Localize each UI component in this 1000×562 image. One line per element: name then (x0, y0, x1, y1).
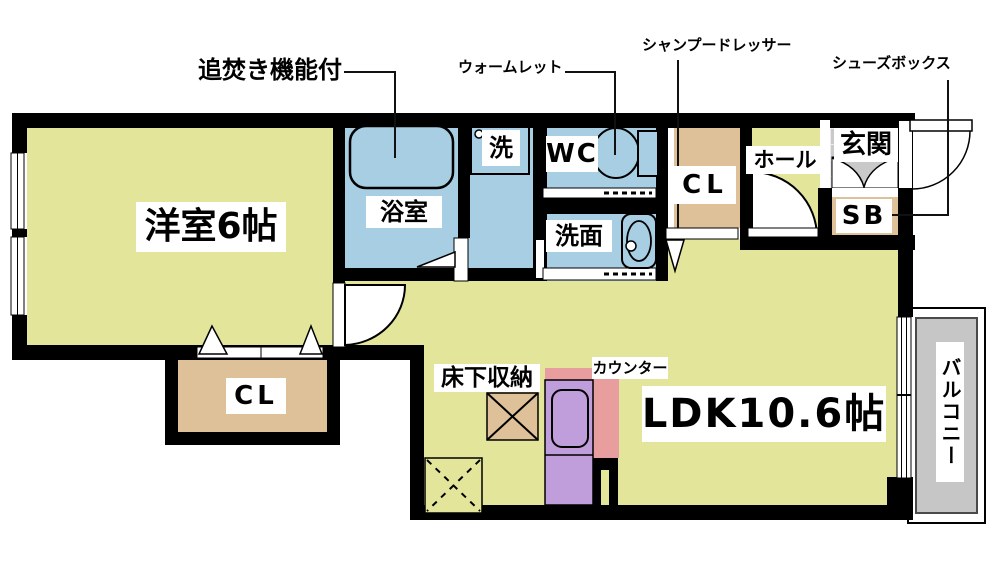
shoe-box-label: SB (836, 199, 892, 233)
annotation-shoes-box: シューズボックス (830, 56, 953, 71)
hall-label: ホール (746, 146, 824, 174)
entrance-door (899, 120, 972, 189)
counter-top-strip (545, 368, 593, 380)
toilet-label: WC (546, 136, 598, 172)
annotation-shampoo-dresser: シャンプードレッサー (640, 38, 794, 53)
toilet-icon (593, 128, 658, 178)
floorplan: 洋室6帖 LDK10.6帖 浴室 洗 WC 洗面 CL ホール 玄関 SB CL… (0, 0, 1000, 562)
floorplan-drawing (0, 0, 1000, 562)
washroom-sliding-door (543, 268, 656, 280)
laundry-label: 洗 (482, 130, 520, 166)
annotation-warmlet: ウォームレット (456, 60, 565, 75)
western-room-label: 洋室6帖 (136, 202, 286, 252)
annotation-reheating: 追焚き機能付 (196, 58, 344, 82)
counter-label: カウンター (592, 357, 668, 379)
closet-upper-label: CL (674, 166, 736, 204)
inspection-hatch (425, 458, 482, 513)
balcony-label: バルコニー (936, 342, 964, 482)
underfloor-storage-hatch (487, 393, 538, 440)
underfloor-storage-label: 床下収納 (434, 364, 540, 392)
bathroom-label: 浴室 (366, 196, 442, 228)
closet-lower-label: CL (226, 378, 286, 414)
entrance-label: 玄関 (834, 128, 898, 162)
ldk-label: LDK10.6帖 (642, 386, 886, 442)
bathtub-icon (350, 126, 453, 188)
balcony-window (897, 317, 911, 478)
washroom-label: 洗面 (546, 220, 612, 252)
counter-side (593, 368, 619, 458)
shoe-box-step (830, 188, 903, 197)
toilet-sliding-door (543, 188, 656, 198)
